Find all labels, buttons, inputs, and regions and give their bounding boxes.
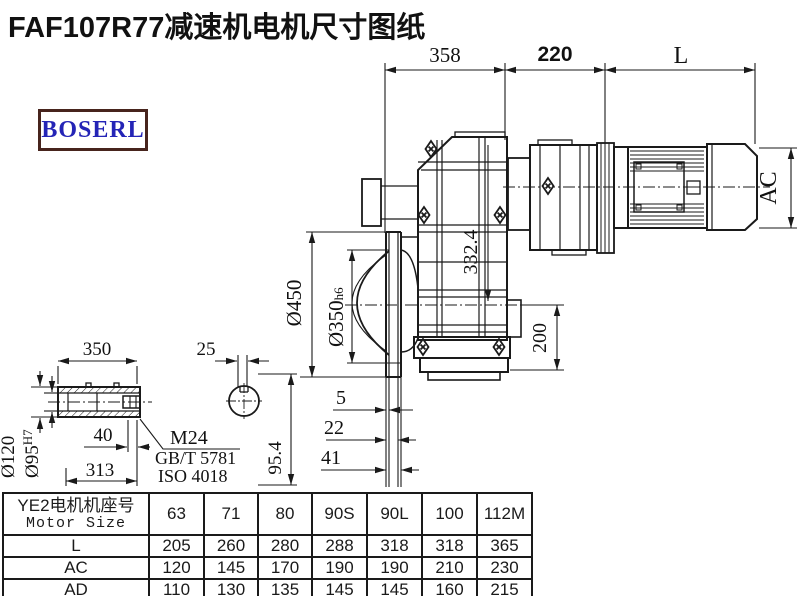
table-cell: 190 [312,557,367,579]
motor-adapter [508,140,614,255]
table-cell: 110 [149,579,204,596]
col-header: 71 [204,493,258,535]
table-cell: 318 [367,535,422,557]
motor-size-table: YE2电机机座号 Motor Size 63 71 80 90S 90L 100… [2,492,533,596]
table-header-motor-size: YE2电机机座号 Motor Size [3,493,149,535]
dim-5-label: 5 [336,387,346,409]
table-cell: 318 [422,535,477,557]
thread-label: M24 [170,427,208,449]
table-cell: 230 [477,557,532,579]
row-label: AD [3,579,149,596]
dim-120-label: Ø120 [0,436,19,478]
col-header: 90S [312,493,367,535]
dim-25-label: 25 [197,339,216,360]
table-cell: 120 [149,557,204,579]
dim-220-label: 220 [537,43,572,66]
table-cell: 215 [477,579,532,596]
shaft-section [226,383,262,419]
table-row: L 205 260 280 288 318 318 365 [3,535,532,557]
table-cell: 145 [204,557,258,579]
table-row: AC 120 145 170 190 190 210 230 [3,557,532,579]
dim-350-len-label: 350 [83,339,112,360]
dim-41-label: 41 [321,447,341,469]
dim-358-label: 358 [429,43,461,67]
col-header: 80 [258,493,312,535]
table-cell: 145 [312,579,367,596]
hollow-shaft-detail [58,383,140,417]
dim-332-label: 332.4 [460,230,482,275]
std-gb-label: GB/T 5781 [155,448,236,468]
table-cell: 288 [312,535,367,557]
dim-95-label: Ø95H7 [20,429,43,478]
dim-40-label: 40 [94,425,113,446]
table-cell: 170 [258,557,312,579]
table-cell: 365 [477,535,532,557]
table-cell: 160 [422,579,477,596]
dim-AC-label: AC [756,171,782,204]
table-cell: 260 [204,535,258,557]
dim-350-label: Ø350h6 [324,287,348,347]
table-cell: 205 [149,535,204,557]
dim-200-label: 200 [529,323,551,353]
table-header-en: Motor Size [4,515,148,532]
col-header: 100 [422,493,477,535]
dim-313-label: 313 [86,460,115,481]
row-label: L [3,535,149,557]
table-header-cn: YE2电机机座号 [4,496,148,516]
dim-22-label: 22 [324,417,344,439]
table-header-row: YE2电机机座号 Motor Size 63 71 80 90S 90L 100… [3,493,532,535]
table-cell: 280 [258,535,312,557]
drawing-page: FAF107R77减速机电机尺寸图纸 BOSERL [0,0,800,596]
col-header: 63 [149,493,204,535]
table-cell: 130 [204,579,258,596]
dim-L-label: L [674,43,689,69]
row-label: AC [3,557,149,579]
table-row: AD 110 130 135 145 145 160 215 [3,579,532,596]
output-face-lines [386,377,401,487]
table-cell: 190 [367,557,422,579]
table-cell: 145 [367,579,422,596]
col-header: 90L [367,493,422,535]
col-header: 112M [477,493,532,535]
std-iso-label: ISO 4018 [158,466,228,486]
table-cell: 135 [258,579,312,596]
dim-954-label: 95.4 [265,441,286,475]
table-cell: 210 [422,557,477,579]
dim-450-label: Ø450 [282,280,306,327]
